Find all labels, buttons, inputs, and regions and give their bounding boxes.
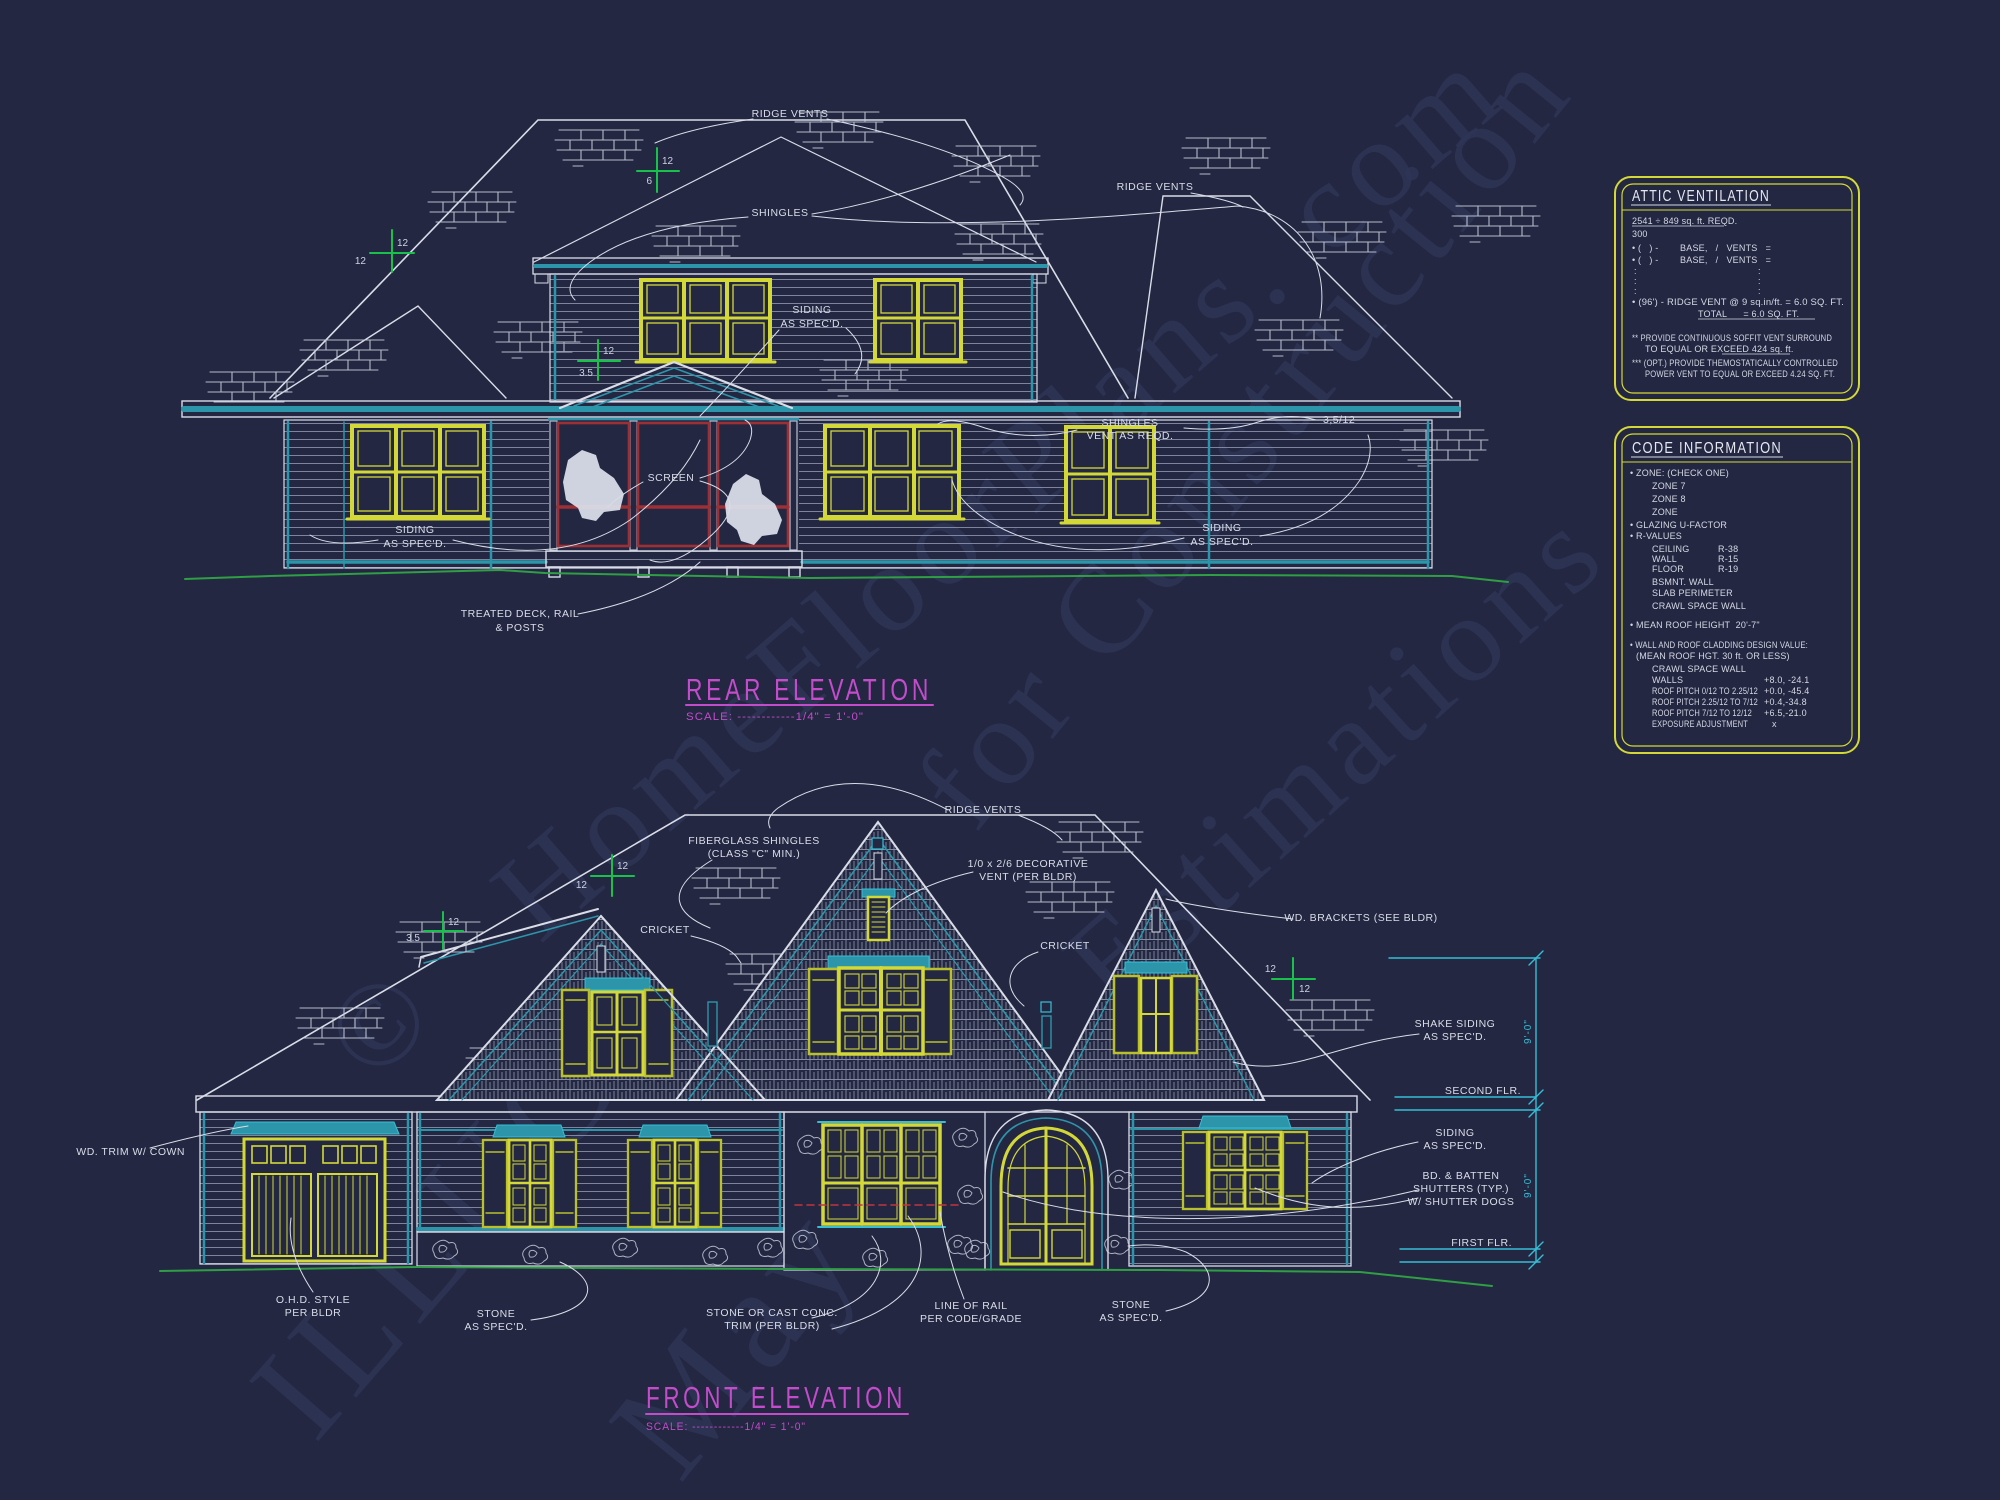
svg-text:12: 12	[448, 917, 460, 928]
svg-text:9'-0": 9'-0"	[1523, 1173, 1534, 1198]
svg-text:12: 12	[355, 256, 367, 267]
svg-text:• R-VALUES: • R-VALUES	[1630, 531, 1682, 541]
svg-text:CRAWL SPACE WALL: CRAWL SPACE WALL	[1652, 664, 1746, 674]
svg-text:12: 12	[662, 156, 674, 167]
svg-text:STONE: STONE	[477, 1308, 515, 1320]
svg-text:EXPOSURE ADJUSTMENT: EXPOSURE ADJUSTMENT	[1652, 719, 1748, 729]
svg-text:WD. BRACKETS (SEE BLDR): WD. BRACKETS (SEE BLDR)	[1284, 912, 1437, 924]
svg-text:WALLS: WALLS	[1652, 675, 1683, 685]
svg-text::: :	[1758, 286, 1761, 296]
svg-text:TOTAL = 6.0 SQ. FT.: TOTAL = 6.0 SQ. FT.	[1698, 309, 1799, 319]
svg-text:12: 12	[617, 861, 629, 872]
svg-text:ZONE 7: ZONE 7	[1652, 481, 1686, 491]
svg-text:BSMNT. WALL: BSMNT. WALL	[1652, 577, 1714, 587]
svg-text:300: 300	[1632, 229, 1648, 239]
svg-text:SCALE: ------------1/4" = 1'-0: SCALE: ------------1/4" = 1'-0"	[686, 711, 864, 723]
svg-text::: :	[1634, 266, 1637, 276]
svg-text:TRIM (PER BLDR): TRIM (PER BLDR)	[724, 1320, 820, 1332]
svg-text:x: x	[1772, 719, 1777, 729]
svg-text:O.H.D. STYLE: O.H.D. STYLE	[276, 1294, 350, 1306]
svg-text:FLOOR: FLOOR	[1652, 564, 1684, 574]
svg-text:• ( ) - BASE, / V: • ( ) - BASE, / VENTS =	[1632, 255, 1771, 265]
svg-text::: :	[1634, 276, 1637, 286]
svg-text:• (96') - RIDGE VENT @ 9 sq.in: • (96') - RIDGE VENT @ 9 sq.in/ft. = 6.0…	[1632, 297, 1844, 307]
svg-text:W/ SHUTTER DOGS: W/ SHUTTER DOGS	[1408, 1196, 1515, 1208]
svg-text:2541 ÷ 849 sq. ft. REQD.: 2541 ÷ 849 sq. ft. REQD.	[1632, 216, 1737, 226]
svg-text:ATTIC VENTILATION: ATTIC VENTILATION	[1632, 188, 1770, 205]
svg-text:12: 12	[1265, 964, 1277, 975]
svg-text:SHINGLES: SHINGLES	[1101, 417, 1158, 429]
svg-text:ZONE: ZONE	[1652, 507, 1678, 517]
svg-text:SIDING: SIDING	[395, 524, 434, 536]
svg-text:AS SPEC'D.: AS SPEC'D.	[1190, 536, 1253, 548]
svg-text:• ZONE: (CHECK ONE): • ZONE: (CHECK ONE)	[1630, 468, 1729, 478]
svg-text:ROOF PITCH 7/12 TO 12/12: ROOF PITCH 7/12 TO 12/12	[1652, 708, 1752, 718]
svg-text:R-15: R-15	[1718, 554, 1738, 564]
svg-text:SHINGLES: SHINGLES	[751, 207, 808, 219]
svg-text:SECOND FLR.: SECOND FLR.	[1445, 1085, 1521, 1097]
svg-text:STONE: STONE	[1112, 1299, 1150, 1311]
svg-text:WALL: WALL	[1652, 554, 1677, 564]
svg-text:STONE OR CAST CONC.: STONE OR CAST CONC.	[706, 1307, 838, 1319]
svg-text:(CLASS "C" MIN.): (CLASS "C" MIN.)	[708, 848, 800, 860]
svg-text:• WALL AND ROOF CLADDING DESIG: • WALL AND ROOF CLADDING DESIGN VALUE:	[1630, 640, 1808, 650]
svg-text:SIDING: SIDING	[792, 304, 831, 316]
svg-text:R-19: R-19	[1718, 564, 1738, 574]
svg-text:RIDGE VENTS: RIDGE VENTS	[945, 804, 1022, 816]
svg-text:VENT (PER BLDR): VENT (PER BLDR)	[979, 871, 1077, 883]
svg-text:VENT AS REQD.: VENT AS REQD.	[1087, 430, 1174, 442]
svg-text:BD. & BATTEN: BD. & BATTEN	[1423, 1170, 1500, 1182]
svg-text:12: 12	[397, 238, 409, 249]
svg-text:LINE OF RAIL: LINE OF RAIL	[934, 1300, 1007, 1312]
svg-text:TO EQUAL OR EXCEED 424 sq. ft: TO EQUAL OR EXCEED 424 sq. ft.	[1645, 344, 1794, 354]
svg-text:12: 12	[603, 346, 615, 357]
svg-text:PER CODE/GRADE: PER CODE/GRADE	[920, 1313, 1022, 1325]
svg-text::: :	[1758, 266, 1761, 276]
svg-text:9'-0": 9'-0"	[1523, 1019, 1534, 1044]
svg-text:& POSTS: & POSTS	[495, 622, 544, 634]
svg-text:CODE INFORMATION: CODE INFORMATION	[1632, 440, 1782, 457]
svg-text::: :	[1634, 286, 1637, 296]
svg-text:CRICKET: CRICKET	[640, 924, 690, 936]
svg-text:ZONE 8: ZONE 8	[1652, 494, 1686, 504]
svg-text:PER BLDR: PER BLDR	[285, 1307, 342, 1319]
svg-text:AS SPEC'D.: AS SPEC'D.	[1099, 1312, 1162, 1324]
svg-text:** PROVIDE CONTINUOUS SOFFIT V: ** PROVIDE CONTINUOUS SOFFIT VENT SURROU…	[1632, 333, 1832, 343]
svg-text:• ( ) - BASE, / V: • ( ) - BASE, / VENTS =	[1632, 243, 1771, 253]
svg-text:RIDGE VENTS: RIDGE VENTS	[1117, 181, 1194, 193]
svg-text:SCREEN: SCREEN	[648, 472, 695, 484]
svg-text:3.5: 3.5	[579, 368, 593, 379]
svg-text:(MEAN ROOF HGT. 30 ft. OR LESS: (MEAN ROOF HGT. 30 ft. OR LESS)	[1636, 651, 1790, 661]
svg-text:TREATED DECK, RAIL: TREATED DECK, RAIL	[461, 608, 580, 620]
svg-text:3.5: 3.5	[406, 933, 420, 944]
svg-text:SHUTTERS (TYP.): SHUTTERS (TYP.)	[1413, 1183, 1509, 1195]
svg-text:CRICKET: CRICKET	[1040, 940, 1090, 952]
svg-text:+8.0, -24.1: +8.0, -24.1	[1764, 675, 1809, 685]
svg-text:WD. TRIM W/ COWN: WD. TRIM W/ COWN	[76, 1146, 185, 1158]
svg-text:+0.0, -45.4: +0.0, -45.4	[1764, 686, 1809, 696]
svg-text:FRONT ELEVATION: FRONT ELEVATION	[646, 1380, 906, 1415]
svg-text:POWER VENT TO EQUAL OR EXCEED: POWER VENT TO EQUAL OR EXCEED 4.24 SQ. F…	[1645, 369, 1835, 379]
svg-text:• MEAN ROOF HEIGHT 20'-7": • MEAN ROOF HEIGHT 20'-7"	[1630, 620, 1760, 630]
svg-text:SCALE: ------------1/4" = 1'-0: SCALE: ------------1/4" = 1'-0"	[646, 1421, 806, 1433]
svg-text:CRAWL SPACE WALL: CRAWL SPACE WALL	[1652, 601, 1746, 611]
svg-text:CEILING: CEILING	[1652, 544, 1689, 554]
svg-text:+6.5,-21.0: +6.5,-21.0	[1764, 708, 1807, 718]
svg-text:+0.4,-34.8: +0.4,-34.8	[1764, 697, 1807, 707]
svg-text:AS SPEC'D.: AS SPEC'D.	[1423, 1031, 1486, 1043]
svg-text:12: 12	[576, 880, 588, 891]
svg-text:AS SPEC'D.: AS SPEC'D.	[780, 318, 843, 330]
svg-text:RIDGE VENTS: RIDGE VENTS	[752, 108, 829, 120]
svg-text:• GLAZING U-FACTOR: • GLAZING U-FACTOR	[1630, 520, 1727, 530]
svg-text:AS SPEC'D.: AS SPEC'D.	[383, 538, 446, 550]
svg-text:REAR ELEVATION: REAR ELEVATION	[686, 672, 932, 707]
svg-text::: :	[1758, 276, 1761, 286]
svg-text:*** (OPT.) PROVIDE THEMOSTATIC: *** (OPT.) PROVIDE THEMOSTATICALLY CONTR…	[1632, 358, 1838, 368]
svg-text:ROOF PITCH 2.25/12 TO 7/12: ROOF PITCH 2.25/12 TO 7/12	[1652, 697, 1758, 707]
svg-text:SLAB PERIMETER: SLAB PERIMETER	[1652, 588, 1733, 598]
svg-text:FIBERGLASS SHINGLES: FIBERGLASS SHINGLES	[688, 835, 819, 847]
svg-text:SIDING: SIDING	[1202, 522, 1241, 534]
svg-text:3,5/12: 3,5/12	[1323, 414, 1355, 426]
svg-text:AS SPEC'D.: AS SPEC'D.	[464, 1321, 527, 1333]
svg-text:12: 12	[1299, 984, 1311, 995]
svg-text:SHAKE SIDING: SHAKE SIDING	[1415, 1018, 1496, 1030]
svg-text:1/0 x 2/6 DECORATIVE: 1/0 x 2/6 DECORATIVE	[968, 858, 1089, 870]
svg-text:R-38: R-38	[1718, 544, 1738, 554]
svg-text:AS SPEC'D.: AS SPEC'D.	[1423, 1140, 1486, 1152]
svg-text:ROOF PITCH 0/12 TO 2.25/12: ROOF PITCH 0/12 TO 2.25/12	[1652, 686, 1758, 696]
svg-text:SIDING: SIDING	[1435, 1127, 1474, 1139]
svg-text:6: 6	[646, 176, 652, 187]
svg-text:FIRST FLR.: FIRST FLR.	[1451, 1237, 1512, 1249]
